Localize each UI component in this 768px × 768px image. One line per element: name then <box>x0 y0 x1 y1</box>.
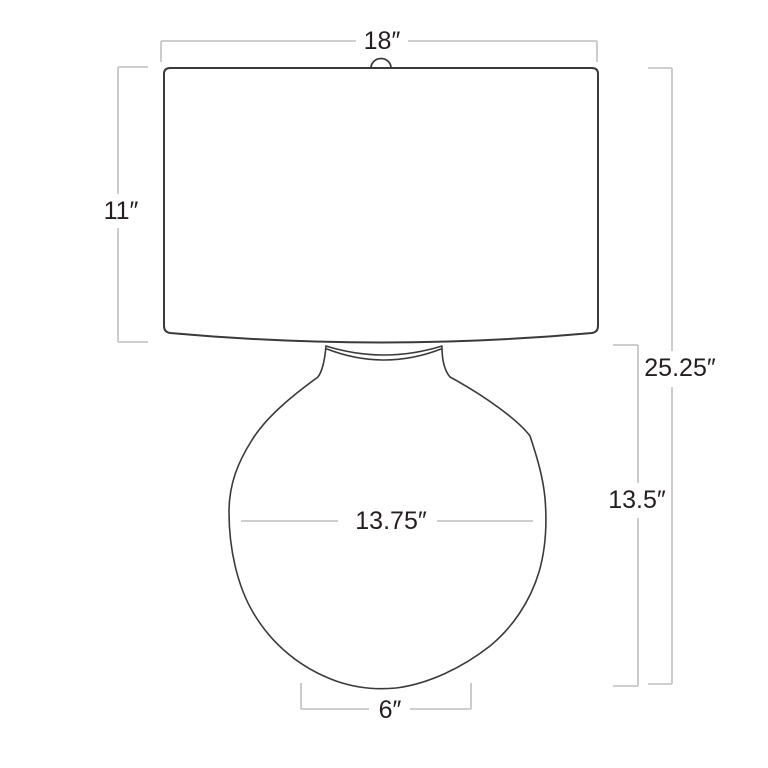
diagram-canvas: 18″ 11″ 25.25″ 13.5″ 13.75″ 6″ <box>0 0 768 768</box>
dim-body-height-label: 13.5″ <box>608 486 666 514</box>
lamp-outline-group <box>164 59 598 689</box>
lamp-finial <box>371 59 391 69</box>
dim-overall-height-label: 25.25″ <box>644 354 716 382</box>
lamp-dimension-diagram: 18″ 11″ 25.25″ 13.5″ 13.75″ 6″ <box>0 0 768 768</box>
dim-shade-height-label: 11″ <box>104 197 139 225</box>
dim-shade-width-label: 18″ <box>364 27 401 55</box>
lamp-shade <box>164 68 598 343</box>
dim-body-width-label: 13.75″ <box>355 507 427 535</box>
dim-base-width-label: 6″ <box>379 696 402 724</box>
dim-body-height <box>613 345 638 686</box>
